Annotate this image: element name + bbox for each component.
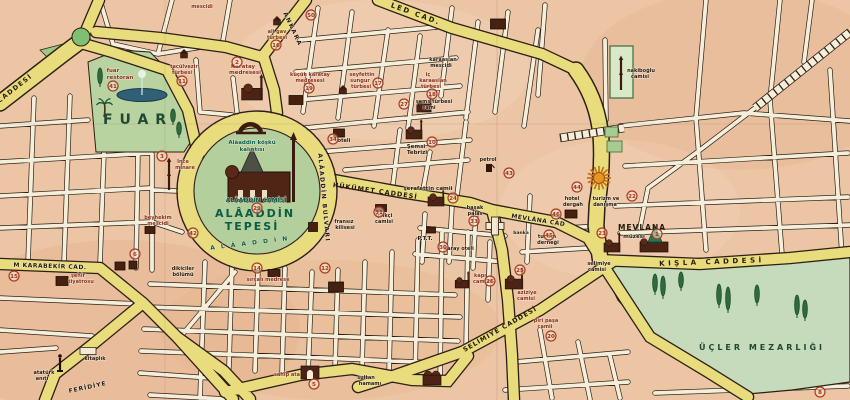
map-label: bölümü (172, 272, 193, 278)
marker-number: 46 (552, 212, 560, 218)
map-label: müzesi (623, 234, 645, 240)
marker-number: 22 (628, 194, 636, 200)
map-marker-42: 42 (188, 228, 198, 238)
green-patch (607, 141, 622, 152)
map-marker-10: 10 (427, 137, 437, 147)
marker-number: 18 (428, 92, 436, 98)
map-label: derneği (537, 240, 559, 246)
map-label: tiyatrosu (68, 279, 94, 285)
map-marker-20: 20 (546, 331, 556, 341)
map-label: kitaplık (84, 356, 106, 362)
map-marker-1: 1 (652, 229, 662, 239)
marker-number: 2 (235, 60, 239, 66)
map-label: kalıntısı (240, 147, 265, 153)
marker-number: 30 (439, 245, 447, 251)
map-marker-44: 44 (572, 182, 582, 192)
map-marker-26: 26 (485, 276, 495, 286)
map-label: camii (538, 324, 553, 330)
map-label: danışma (593, 202, 617, 208)
map-marker-30: 30 (438, 242, 448, 252)
building-icon (115, 262, 125, 270)
building-icon (56, 277, 68, 286)
map-canvas: CADDESİANKARALED CAD.HÜKÜMET CADDESİMEVL… (0, 0, 850, 400)
marker-number: 41 (109, 84, 117, 90)
marker-number: 16 (272, 43, 280, 49)
map-label: türbesi (172, 70, 192, 76)
marker-number: 31 (375, 210, 383, 216)
map-marker-11: 11 (177, 76, 187, 86)
map-marker-5: 5 (309, 379, 319, 389)
map-label: şerafettin camii (404, 186, 453, 192)
map-label: fuar (107, 68, 120, 74)
marker-number: 19 (305, 86, 313, 92)
map-label: camisi (631, 74, 649, 80)
map-label: anıtı (36, 376, 49, 382)
map-label: petrol (480, 157, 497, 163)
map-label: Alâaddin köşkü (228, 139, 275, 146)
map-marker-23: 23 (597, 228, 607, 238)
map-label: camisi (517, 296, 535, 302)
marker-number: 24 (449, 196, 457, 202)
marker-number: 3 (160, 154, 164, 160)
map-label: banka (513, 230, 529, 236)
map-marker-50: 50 (306, 10, 316, 20)
marker-number: 23 (598, 231, 606, 237)
marker-number: 14 (253, 266, 261, 272)
map-label: mescidi (430, 63, 452, 69)
map-label: P.T.T. (417, 236, 432, 242)
map-marker-17: 17 (373, 78, 383, 88)
map-marker-8: 8 (815, 387, 825, 397)
map-marker-34: 34 (328, 134, 338, 144)
map-label: cami (422, 105, 436, 111)
map-marker-31: 31 (374, 207, 384, 217)
map-marker-27: 27 (399, 99, 409, 109)
map-marker-46: 46 (551, 209, 561, 219)
sun-icon (587, 166, 611, 190)
marker-number: 50 (307, 13, 315, 19)
map-marker-43: 43 (504, 168, 514, 178)
map-label: türbesi (351, 84, 371, 90)
green-patch (605, 127, 618, 137)
marker-number: 29 (253, 206, 261, 212)
map-marker-41: 41 (108, 81, 118, 91)
marker-number: 43 (505, 171, 513, 177)
map-label: mescidi (191, 4, 213, 10)
map-label: ÜÇLER MEZARLIĞI (699, 341, 825, 352)
building-icon (268, 270, 280, 277)
building-icon (491, 19, 506, 29)
map-marker-25: 25 (515, 265, 525, 275)
map-label: saray oteli (444, 246, 474, 252)
map-label: İnce (177, 158, 189, 165)
marker-number: 17 (374, 81, 382, 87)
map-label: restoran (107, 75, 134, 81)
map-label: Tebrizi (407, 150, 427, 156)
marker-number: 6 (133, 252, 137, 258)
map-marker-22: 22 (627, 191, 637, 201)
building-icon (80, 348, 96, 355)
map-label: camisi (375, 219, 393, 225)
building-icon (129, 261, 137, 269)
marker-number: 5 (312, 382, 316, 388)
map-label: TEPESİ (225, 219, 280, 233)
map-marker-12: 12 (320, 263, 330, 273)
map-label: dergah (563, 202, 583, 208)
map-marker-16: 16 (271, 40, 281, 50)
map-marker-2: 2 (232, 57, 242, 67)
marker-number: 20 (547, 334, 555, 340)
map-label: hamamı (359, 381, 382, 387)
marker-number: 1 (655, 232, 659, 238)
gate-icon (301, 366, 319, 379)
building-icon (309, 223, 318, 232)
marker-number: 27 (400, 102, 408, 108)
building-icon (289, 96, 303, 105)
marker-number: 42 (189, 231, 197, 237)
marker-number: 34 (329, 137, 337, 143)
building-icon (329, 282, 344, 292)
map-marker-15: 15 (9, 271, 19, 281)
map-marker-29: 29 (252, 203, 262, 213)
map-label: medresesi (229, 70, 261, 76)
map-label: sırçalı medrese (246, 277, 290, 283)
map-marker-19: 19 (304, 83, 314, 93)
building-icon (565, 210, 577, 218)
marker-number: 12 (321, 266, 329, 272)
map-marker-6: 6 (130, 249, 140, 259)
map-label: camisi (588, 267, 606, 273)
map-marker-24: 24 (448, 193, 458, 203)
map-marker-14: 14 (252, 263, 262, 273)
map-label: FUAR (103, 112, 173, 128)
marker-number: 45 (545, 233, 553, 239)
building-icon (427, 227, 436, 233)
map-label: sahip ata (274, 372, 300, 378)
marker-number: 8 (818, 390, 822, 396)
roundabout (72, 28, 90, 46)
map-label: kilisesi (335, 225, 355, 231)
building-icon (145, 227, 155, 234)
map-label: minare (175, 165, 195, 171)
map-marker-45: 45 (544, 230, 554, 240)
map-label: mescidi (147, 221, 169, 227)
map-marker-18: 18 (427, 89, 437, 99)
marker-number: 25 (516, 268, 524, 274)
marker-number: 26 (486, 279, 494, 285)
map-marker-33: 33 (469, 216, 479, 226)
konya-tourist-map: CADDESİANKARALED CAD.HÜKÜMET CADDESİMEVL… (0, 0, 850, 400)
marker-number: 10 (428, 140, 436, 146)
marker-number: 44 (573, 185, 581, 191)
marker-number: 11 (178, 79, 186, 85)
map-label: oteli (338, 138, 351, 144)
marker-number: 33 (470, 219, 478, 225)
marker-number: 15 (10, 274, 18, 280)
